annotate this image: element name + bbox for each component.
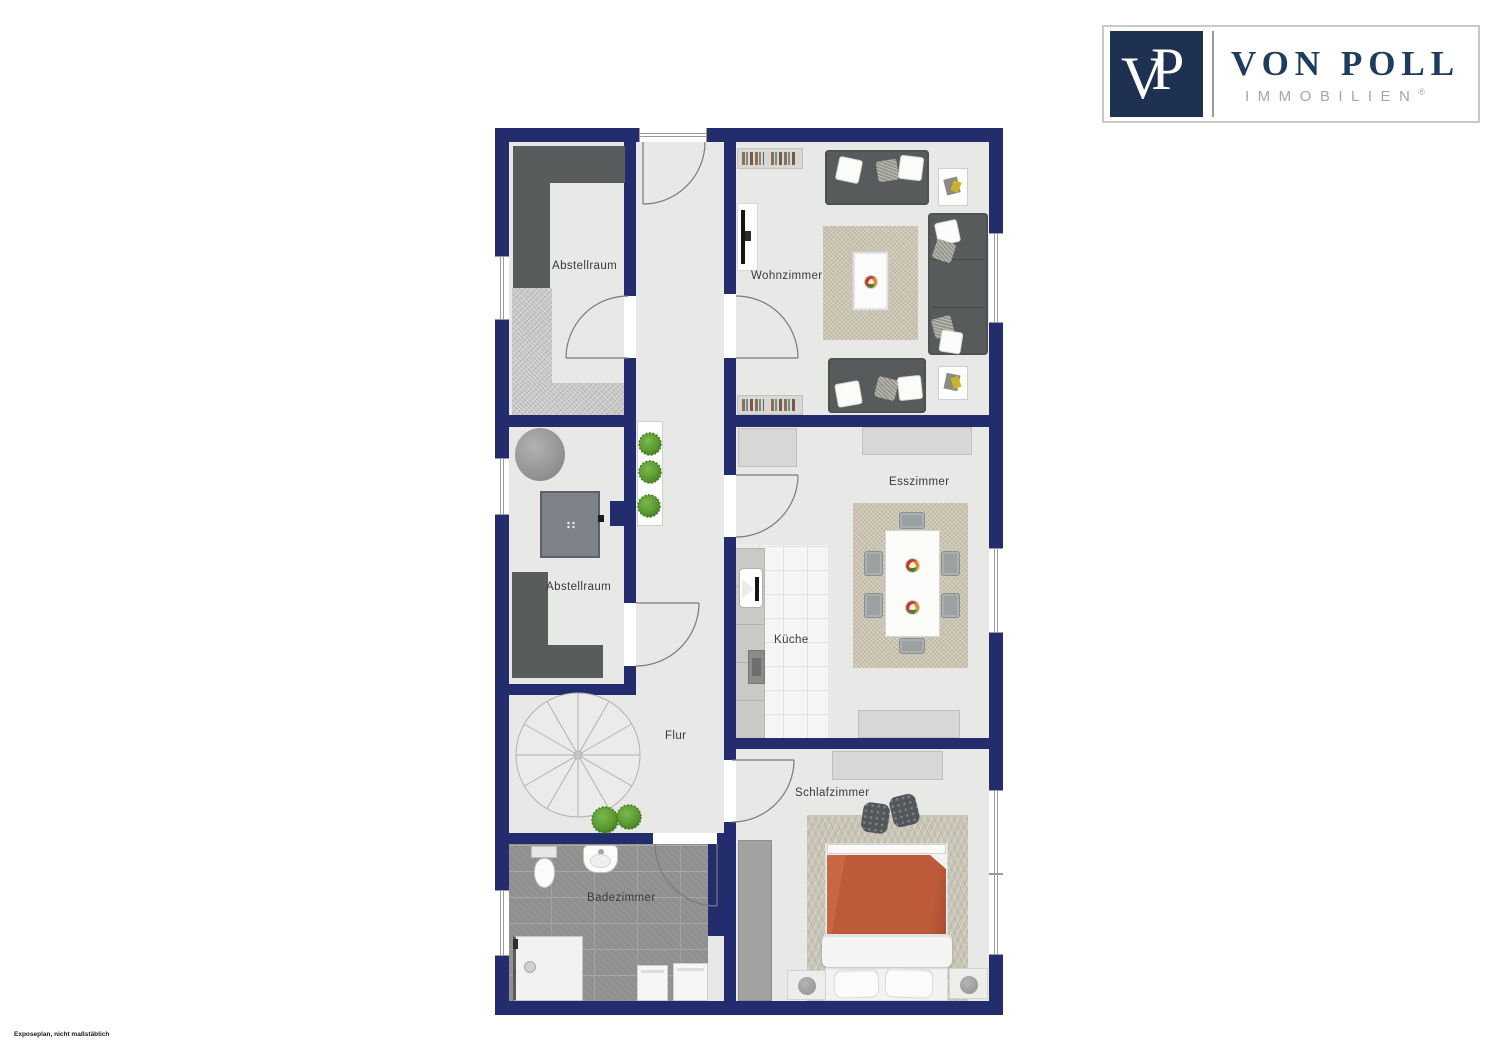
brand-subtitle: IMMOBILIEN® [1231, 87, 1460, 105]
brand-subtitle-text: IMMOBILIEN [1245, 88, 1418, 105]
logo-divider [1212, 31, 1214, 117]
schlafzimmer-door-swing [732, 760, 794, 822]
von-poll-logo: V P VON POLL IMMOBILIEN® [1102, 25, 1480, 123]
floor-plan: Abstellraum Wohnzimmer Abstellraum Esszi… [495, 128, 1003, 1015]
registered-mark: ® [1418, 87, 1425, 97]
room-label-schlafzimmer: Schlafzimmer [795, 787, 869, 799]
plant-icon [592, 807, 618, 833]
wohnzimmer-door-swing [736, 296, 798, 358]
esszimmer-door-swing [736, 475, 798, 537]
plant-icon [639, 433, 661, 455]
logo-text-block: VON POLL IMMOBILIEN® [1231, 44, 1460, 105]
plant-icon [617, 805, 641, 829]
room-label-abstellraum1: Abstellraum [552, 260, 617, 272]
scale-disclaimer: Exposeplan, nicht maßstäblich [14, 1031, 109, 1038]
plant-icon [639, 461, 661, 483]
room-label-esszimmer: Esszimmer [889, 476, 949, 488]
room-label-wohnzimmer: Wohnzimmer [751, 270, 823, 282]
spiral-staircase [516, 693, 640, 817]
room-label-badezimmer: Badezimmer [587, 892, 656, 904]
monogram-p: P [1151, 39, 1184, 99]
badezimmer-door-swing [655, 844, 717, 906]
abstellraum1-door-swing [566, 296, 628, 358]
plant-icon [638, 495, 660, 517]
room-label-kueche: Küche [774, 634, 809, 646]
abstellraum2-door-swing [636, 603, 699, 666]
room-label-abstellraum2: Abstellraum [546, 581, 611, 593]
brand-name: VON POLL [1231, 44, 1460, 84]
room-label-flur: Flur [665, 730, 686, 742]
entrance-door-swing [643, 142, 705, 204]
vp-monogram-box: V P [1110, 31, 1203, 117]
